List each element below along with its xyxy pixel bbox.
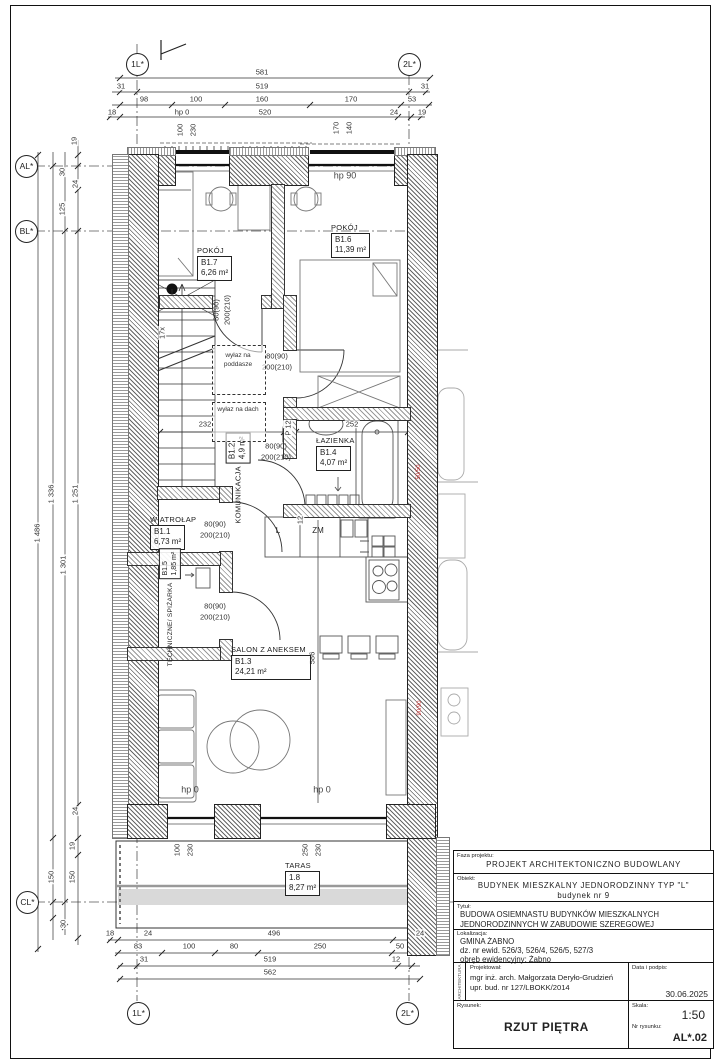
title-block-row-obiekt: Obiekt: BUDYNEK MIESZKALNY JEDNORODZINNY…: [454, 873, 713, 901]
dim: 496: [267, 929, 282, 937]
attic-hatch-label: wyłaz na: [225, 353, 250, 360]
dim: 150: [68, 870, 76, 885]
dim: 232: [198, 420, 213, 428]
window-dim: 100: [173, 843, 181, 858]
room-label-b15: TECHNICZNE/ SPIŻARKA B1.51,85 m²: [159, 548, 181, 666]
wall: [230, 155, 308, 185]
dim: 24: [389, 108, 399, 116]
axis-bubble-bl: BL*: [15, 220, 38, 243]
attic-hatch-label: poddasze: [224, 362, 252, 369]
wall: [215, 805, 260, 838]
neighbour-unit: [438, 350, 478, 736]
faza-label: Faza projektu:: [457, 853, 494, 859]
data-cell: Data i podpis: 30.06.2025: [628, 963, 713, 1000]
door-spec: 80(90)200(210): [212, 295, 233, 325]
room-name: ŁAZIENKA: [316, 436, 355, 445]
room-label-b12: KOMUNIKACJA B1.24,9 m²: [226, 432, 251, 523]
projektowal-label: Projektował:: [470, 965, 502, 971]
dimension-lines: [38, 78, 432, 979]
tytul-line1: BUDOWA OSIEMNASTU BUDYNKÓW MIESZKALNYCH: [460, 911, 659, 919]
room-name: POKÓJ: [197, 246, 232, 255]
wall-left: [128, 155, 158, 838]
dim: 53: [407, 95, 417, 103]
dimension-ticks: [35, 75, 433, 982]
room-label-b13: SALON Z ANEKSEM B1.324,21 m²: [231, 645, 311, 680]
title-block-row-projektowal: ARCHITEKTURA Projektował: mgr inż. arch.…: [454, 962, 713, 1000]
dim: 519: [263, 955, 278, 963]
dim: 30: [59, 919, 67, 929]
dim: 24: [71, 806, 79, 816]
room-id-area: B1.16,73 m²: [150, 525, 185, 550]
title-block-row-faza: Faza projektu: PROJEKT ARCHITEKTONICZNO …: [454, 851, 713, 873]
window-dim: 140: [345, 121, 353, 136]
sill-height-label: hp 0: [174, 108, 191, 116]
branza-cell: ARCHITEKTURA: [454, 963, 466, 1000]
data-label: Data i podpis:: [632, 965, 667, 971]
window-dim: 230: [186, 843, 194, 858]
dim: 252: [345, 420, 360, 428]
dim: 24: [415, 929, 425, 937]
insulation: [395, 148, 435, 155]
room-name: TARAS: [285, 861, 320, 870]
dim: 520: [258, 108, 273, 116]
axis-bubble-1l-top: 1L*: [126, 53, 149, 76]
room-label-b11: WIATROŁAP B1.16,73 m²: [150, 515, 196, 550]
obiekt-line1: BUDYNEK MIESZKALNY JEDNORODZINNY TYP "L": [454, 881, 713, 890]
dim: 18: [107, 108, 117, 116]
dim: 1 251: [71, 484, 79, 505]
title-block-row-rysunek: Rysunek: RZUT PIĘTRA Skala: 1:50 Nr rysu…: [454, 1000, 713, 1048]
room-name: TECHNICZNE/ SPIŻARKA: [167, 583, 174, 667]
door-spec: 80(90)200(210): [262, 352, 292, 373]
data-value: 30.06.2025: [665, 990, 708, 999]
dim: 160: [255, 95, 270, 103]
partition: [220, 552, 232, 592]
projektowal-line2: upr. bud. nr 127/LBOKK/2014: [470, 984, 570, 992]
dim: 30: [58, 167, 66, 177]
dim: 519: [255, 82, 270, 90]
dim: 1 301: [59, 555, 67, 576]
dim: 12: [391, 955, 401, 963]
room-id-area: 1.88,27 m²: [285, 871, 320, 896]
room-id-area: B1.611,39 m²: [331, 233, 370, 258]
dim: 562: [263, 968, 278, 976]
partition: [272, 185, 284, 308]
skala-value: 1:50: [682, 1009, 705, 1021]
dim: 100: [182, 942, 197, 950]
window-dim: 230: [314, 843, 322, 858]
axis-bubble-2l-top: 2L*: [398, 53, 421, 76]
tytul-line2: JEDNORODZINNYCH W ZABUDOWIE SZEREGOWEJ: [460, 921, 654, 929]
dim: 19: [68, 841, 76, 851]
insulation: [230, 148, 308, 155]
title-block-row-lokalizacja: Lokalizacja: GMINA ŻABNO dz. nr ewid. 52…: [454, 929, 713, 962]
faza-value: PROJEKT ARCHITEKTONICZNO BUDOWLANY: [454, 860, 713, 869]
window-dim: 230: [189, 123, 197, 138]
dim: 98: [139, 95, 149, 103]
insulation-right: [437, 838, 449, 955]
axis-bubble-al: AL*: [15, 155, 38, 178]
dim: 31: [420, 82, 430, 90]
projektowal-line1: mgr inż. arch. Małgorzata Deryło-Grudzie…: [470, 974, 613, 982]
dim: 19: [70, 136, 78, 146]
dim: 100: [189, 95, 204, 103]
dim: 12: [296, 515, 304, 525]
obiekt-line2: budynek nr 9: [454, 891, 713, 900]
room-label-b16: POKÓJ B1.611,39 m²: [331, 223, 370, 258]
dim: 24: [143, 929, 153, 937]
stairs: [150, 280, 215, 488]
flue-label: 50/50: [416, 464, 422, 479]
dim: P 12: [284, 419, 292, 436]
nr-label: Nr rysunku:: [632, 1024, 662, 1030]
room-id-area: B1.324,21 m²: [231, 655, 311, 680]
wall: [387, 805, 435, 838]
insulation: [128, 148, 175, 155]
flue-label: 90/90: [417, 700, 423, 715]
room-label-b17: POKÓJ B1.76,26 m²: [197, 246, 232, 281]
dim: 1 486: [33, 523, 41, 544]
nr-value: AL*.02: [673, 1033, 707, 1044]
window-dim: 100: [176, 123, 184, 138]
dim: 31: [116, 82, 126, 90]
dim: 1 336: [47, 484, 55, 505]
skala-label: Skala:: [632, 1003, 648, 1009]
roof-hatch-label: wyłaz na dach: [217, 407, 258, 414]
branza-vertical-label: ARCHITEKTURA: [458, 964, 463, 999]
dim: 170: [344, 95, 359, 103]
dim: 31: [139, 955, 149, 963]
dim: 18: [105, 929, 115, 937]
dim: 150: [47, 870, 55, 885]
title-block-row-tytul: Tytuł: BUDOWA OSIEMNASTU BUDYNKÓW MIESZK…: [454, 901, 713, 929]
room-id-area: B1.51,85 m²: [159, 548, 181, 580]
title-block: Faza projektu: PROJEKT ARCHITEKTONICZNO …: [453, 850, 714, 1049]
rysunek-label: Rysunek:: [457, 1003, 481, 1009]
sill-height-label: hp 0: [181, 786, 199, 795]
room-name: WIATROŁAP: [150, 515, 196, 524]
stairs-count-label: 17x: [158, 326, 166, 340]
room-name: SALON Z ANEKSEM: [231, 645, 311, 654]
section-mark: [161, 40, 186, 60]
door-spec: 80(90)200(210): [200, 520, 230, 541]
door-spec: 80(90)200(210): [200, 602, 230, 623]
dim: 250: [313, 942, 328, 950]
window-dim: 170: [332, 121, 340, 136]
rysunek-value: RZUT PIĘTRA: [504, 1021, 589, 1033]
dim: 83: [133, 942, 143, 950]
dishwasher-label: ZM: [312, 527, 324, 535]
partition: [284, 408, 410, 420]
window-dim: 250: [301, 843, 309, 858]
terrace-lines: [116, 841, 438, 928]
dim: 24: [71, 179, 79, 189]
room-id-area: B1.44,07 m²: [316, 446, 351, 471]
axis-bubble-cl: CL*: [16, 891, 39, 914]
dim: 581: [255, 68, 270, 76]
floor-plan-sheet: 1L* 2L* 1L* 2L* AL* BL* CL* 581 31 519 3…: [0, 0, 719, 1063]
partition: [160, 296, 212, 308]
partition: [284, 296, 296, 350]
room-id-area: B1.76,26 m²: [197, 256, 232, 281]
sill-height-label: hp 0: [313, 786, 331, 795]
dim: 19: [417, 108, 427, 116]
room-label-b14: ŁAZIENKA B1.44,07 m²: [316, 436, 355, 471]
lokalizacja-line1: GMINA ŻABNO: [460, 938, 514, 946]
dim: 80: [229, 942, 239, 950]
lokalizacja-line2: dz. nr ewid. 526/3, 526/4, 526/5, 527/3: [460, 947, 593, 955]
wall: [128, 805, 167, 838]
door-spec: 80(90)200(210): [261, 442, 291, 463]
dim: 125: [58, 202, 66, 217]
skala-cell: Skala: 1:50 Nr rysunku: AL*.02: [628, 1001, 713, 1048]
dim: 50: [395, 942, 405, 950]
insulation-left: [113, 155, 128, 838]
fridge-label: L: [276, 527, 280, 535]
axis-bubble-1l-bottom: 1L*: [127, 1002, 150, 1025]
room-name: KOMUNIKACJA: [234, 466, 243, 523]
axis-bubble-2l-bottom: 2L*: [396, 1002, 419, 1025]
room-label-taras: TARAS 1.88,27 m²: [285, 861, 320, 896]
sill-height-label: hp 90: [334, 172, 357, 181]
room-name: POKÓJ: [331, 223, 370, 232]
